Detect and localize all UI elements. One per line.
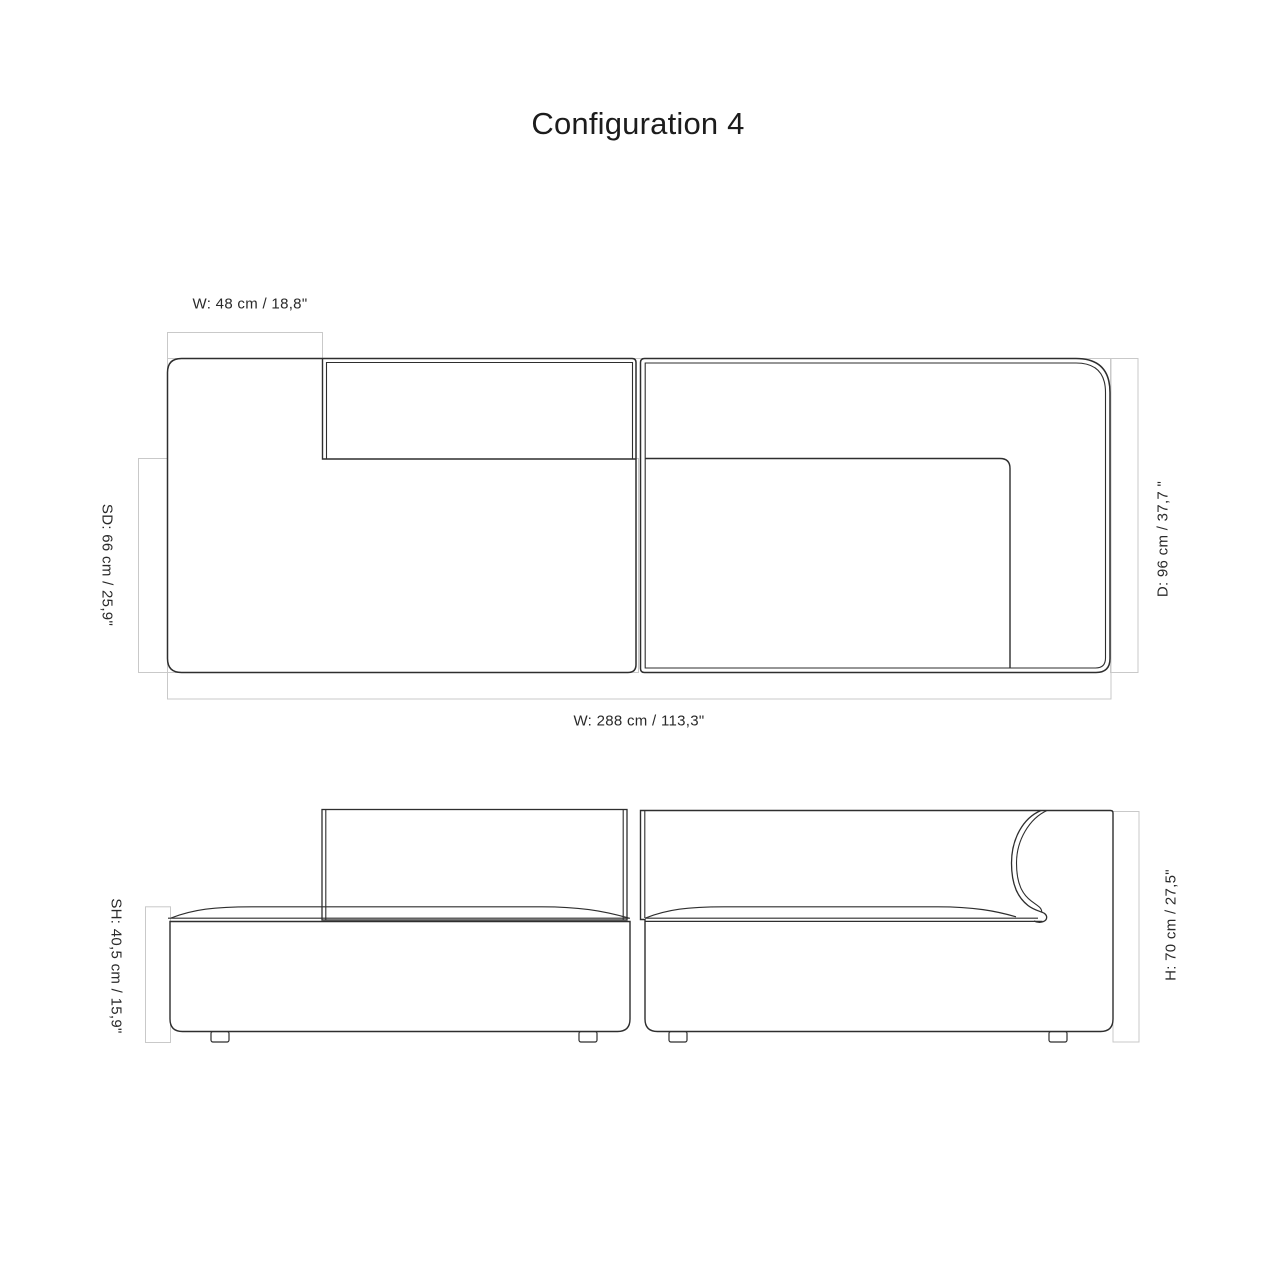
front-elevation-view (146, 810, 1140, 1043)
elevation-right-foot-2 (1049, 1032, 1067, 1043)
elevation-left-base (170, 922, 630, 1032)
dimension-box-height (1113, 812, 1139, 1043)
sofa-configuration-diagram: Configuration 4 W: 48 cm / 18,8" SD: 66 … (0, 0, 1280, 1280)
label-seat-height: SH: 40,5 cm / 15,9" (108, 898, 125, 1033)
plan-left-module-outline (168, 359, 637, 673)
plan-right-module-outline (641, 359, 1111, 673)
label-module-width: W: 48 cm / 18,8" (193, 296, 308, 313)
plan-right-module (641, 359, 1111, 673)
elevation-left-foot-1 (211, 1032, 229, 1043)
elevation-left-backrest (322, 810, 627, 921)
plan-left-module (168, 359, 637, 673)
elevation-right-module (641, 811, 1114, 1043)
dimension-box-seat-height (146, 907, 171, 1043)
label-seat-depth: SD: 66 cm / 25,9" (99, 504, 116, 626)
elevation-left-foot-2 (579, 1032, 597, 1043)
page-title: Configuration 4 (531, 106, 744, 142)
label-depth: D: 96 cm / 37,7 " (1155, 481, 1172, 597)
sofa-line-drawing (0, 0, 1280, 1280)
elevation-left-module (168, 810, 630, 1043)
dimension-box-depth (1111, 359, 1139, 673)
label-height: H: 70 cm / 27,5" (1163, 869, 1180, 981)
label-total-width: W: 288 cm / 113,3" (573, 713, 704, 730)
elevation-right-foot-1 (669, 1032, 687, 1043)
plan-view (139, 333, 1139, 700)
